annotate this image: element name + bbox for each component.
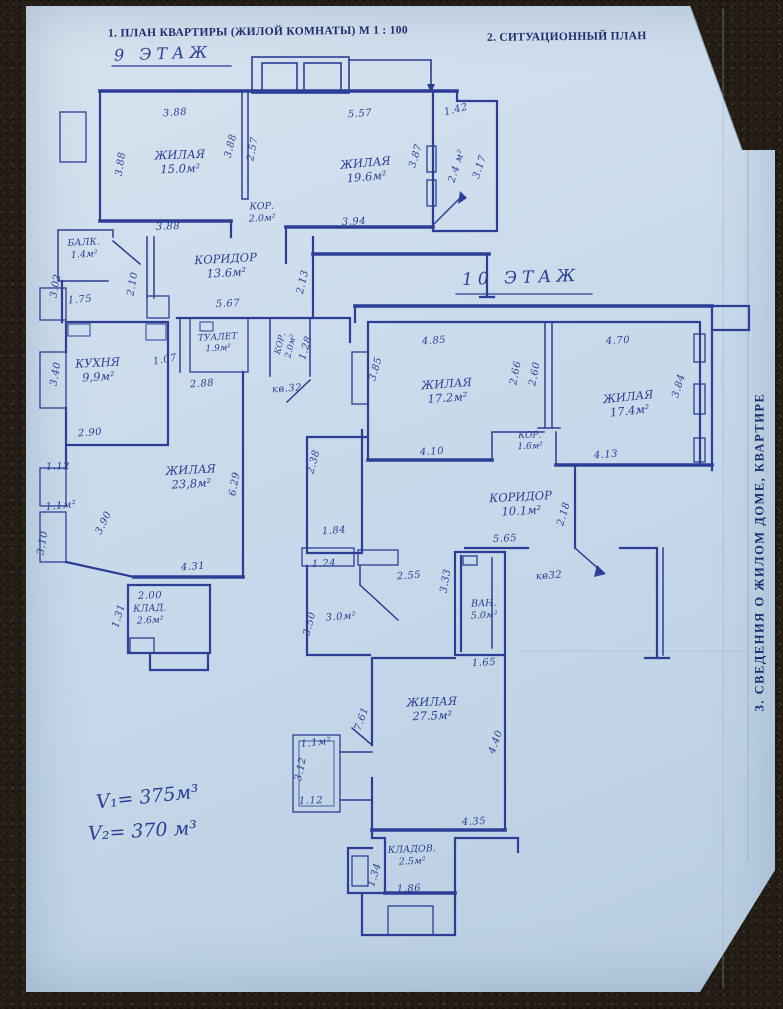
scanned-floorplan-page: 1. ПЛАН КВАРТИРЫ (ЖИЛОЙ КОМНАТЫ) М 1 : 1… bbox=[0, 0, 783, 1009]
blueprint-paper-sheet bbox=[26, 6, 775, 992]
